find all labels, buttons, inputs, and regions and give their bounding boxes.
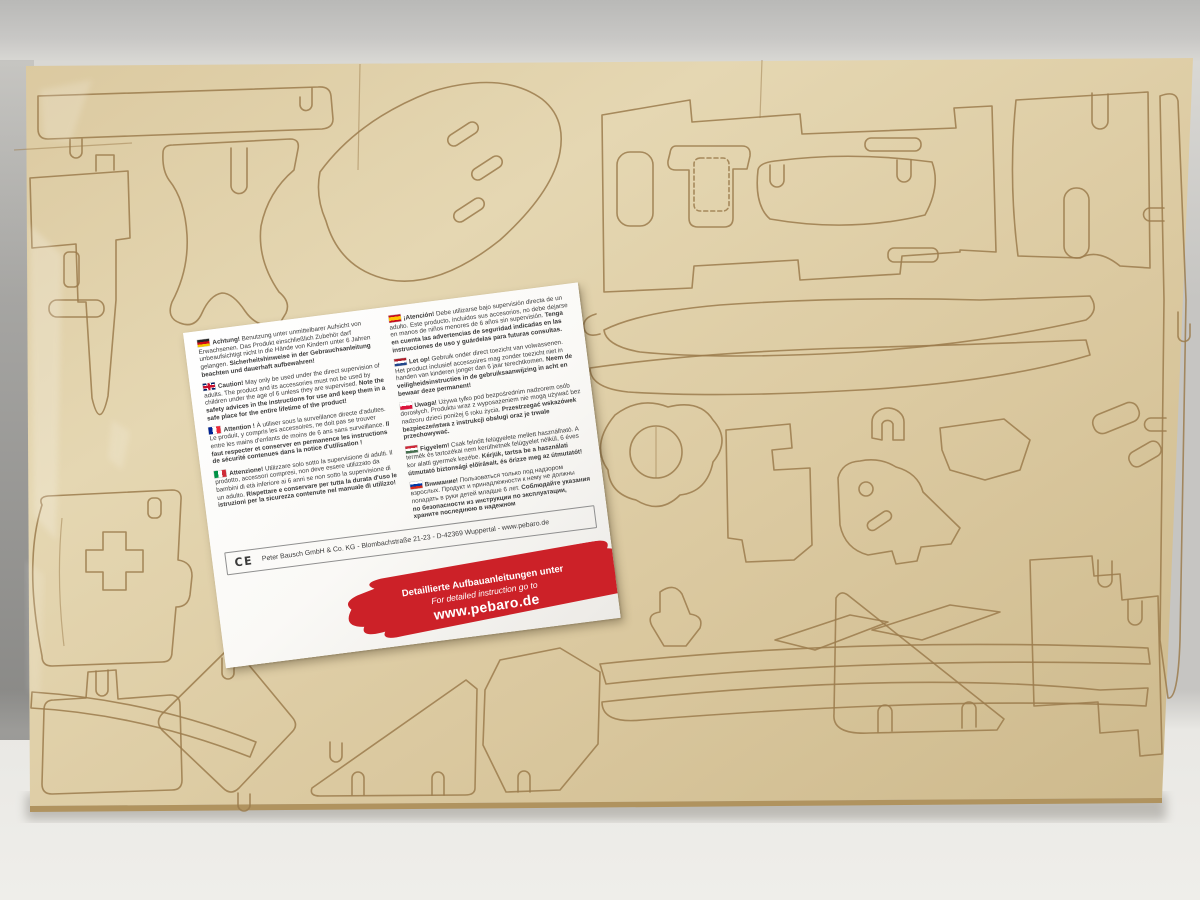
spain-flag-icon — [388, 314, 401, 322]
safety-instructions-label: Achtung! Benutzung unter unmittelbarer A… — [183, 282, 621, 668]
france-flag-icon — [208, 426, 221, 434]
germany-flag-icon — [197, 339, 210, 347]
label-column-left: Achtung! Benutzung unter unmittelbarer A… — [197, 317, 404, 550]
ce-mark: CE — [234, 553, 254, 569]
uk-flag-icon — [203, 382, 216, 390]
plywood-sheet — [0, 0, 1200, 900]
label-column-right: ¡Atención! Debe utilizarse bajo supervis… — [388, 293, 595, 526]
poland-flag-icon — [399, 401, 412, 409]
russia-flag-icon — [409, 481, 422, 489]
hungary-flag-icon — [405, 445, 418, 453]
italy-flag-icon — [214, 469, 227, 477]
product-photo-scene: Achtung! Benutzung unter unmittelbarer A… — [0, 0, 1200, 900]
netherlands-flag-icon — [394, 358, 407, 366]
